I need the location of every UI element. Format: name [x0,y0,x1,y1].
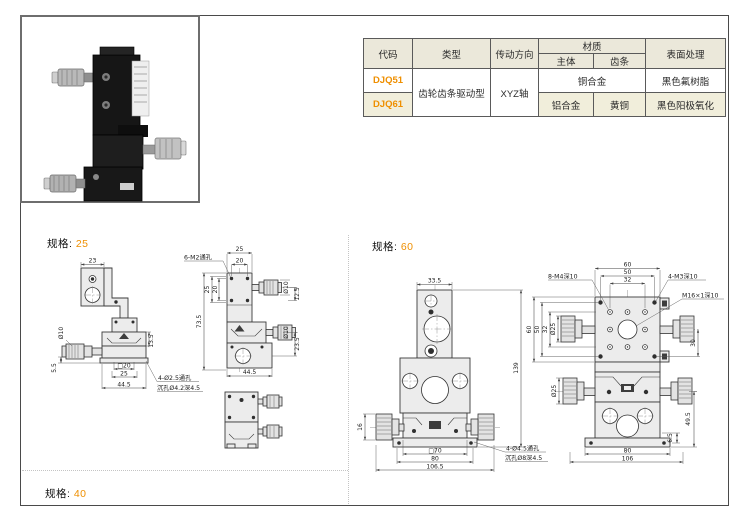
col-header-material-body: 主体 [539,54,594,69]
drawing-25-front: 25 20 6-M2通孔 73.5 25 20 Ø10 12.5 Ø10 [184,246,301,377]
dim-label: 60 [526,326,533,334]
product-photo-image [22,17,198,201]
dim-label: Ø25 [551,385,558,398]
col-header-material: 材质 [539,39,646,54]
dim-label: 49.5 [685,412,692,426]
catalog-page: 代码 类型 传动方向 材质 表面处理 主体 齿条 DJQ51 齿轮齿条驱动型 X… [0,0,748,510]
drawing-60-front: 33.5 139 16 □70 80 106.5 4-Ø4.5通孔 沉孔Ø8深4… [357,278,548,473]
dim-label: 50 [534,326,541,334]
drawings-spec-60: 33.5 139 16 □70 80 106.5 4-Ø4.5通孔 沉孔Ø8深4… [352,250,728,480]
dim-label: 20 [212,286,219,294]
section-label-40: 规格: 40 [45,486,87,501]
dim-label: 12.5 [294,287,301,301]
dim-label: 44.5 [243,369,257,376]
col-header-direction: 传动方向 [491,39,539,69]
dim-label: 44.5 [117,382,131,389]
dim-label: 106.5 [426,464,443,471]
hole-note: 4-Ø4.5通孔 [506,445,539,453]
dim-label: 73.5 [196,315,203,329]
col-header-type: 类型 [413,39,491,69]
spec-value: 40 [74,488,87,500]
drawings-spec-25: 23 Ø10 13.5 5.5 □20 25 44.5 4-Ø2.5通孔 沉孔Ø… [40,244,350,466]
dim-label: 25 [120,371,128,378]
dim-label: 23 [89,258,97,265]
col-header-code: 代码 [364,39,413,69]
col-header-surface: 表面处理 [646,39,726,69]
hole-note: 4-M3深10 [668,273,698,281]
drawing-25-third [225,392,282,448]
dim-label: 25 [204,286,211,294]
dim-label: 80 [431,456,439,463]
hole-note: 沉孔Ø8深4.5 [505,454,542,462]
cell-type: 齿轮齿条驱动型 [413,69,491,117]
dim-label: 33.5 [428,278,442,285]
dim-label: 20 [236,258,244,265]
dim-label: Ø25 [550,323,557,336]
drawing-60-top: 60 50 32 8-M4深10 4-M3深10 M16×1深10 60 50 … [526,262,724,465]
dim-label: □20 [117,363,130,370]
dim-label: 25 [236,246,244,253]
dim-label: 13.5 [148,334,155,348]
cell-code-djq51: DJQ51 [364,69,413,93]
cell-code-djq61: DJQ61 [364,93,413,117]
cell-material-djq51: 铜合金 [539,69,646,93]
cell-surface-djq61: 黑色阳极氧化 [646,93,726,117]
dim-label: 5.5 [51,363,58,373]
table-row: DJQ51 齿轮齿条驱动型 XYZ轴 铜合金 黑色氟树脂 [364,69,726,93]
cell-material-body-djq61: 铝合金 [539,93,594,117]
product-photo [20,15,200,203]
dim-label: 139 [513,362,520,374]
dim-label: 50 [624,269,632,276]
dim-label: 6.5 [667,433,674,443]
hole-note: 6-M2通孔 [184,254,212,262]
cell-material-rack-djq61: 黄铜 [594,93,646,117]
dim-label: 30 [690,339,697,347]
dim-label: 23.5 [294,337,301,351]
dim-label: Ø10 [58,327,65,340]
hole-note: 8-M4深10 [548,273,578,281]
cell-direction: XYZ轴 [491,69,539,117]
dim-label: 32 [542,326,549,334]
section-divider [22,470,348,471]
dim-label: 16 [357,423,364,431]
hole-note: 4-Ø2.5通孔 [158,374,191,382]
dim-label: □70 [428,448,441,455]
dim-label: 60 [624,262,632,269]
dim-label: 32 [624,277,632,284]
hole-note: 沉孔Ø4.2深4.5 [157,384,200,392]
drawing-25-side: 23 Ø10 13.5 5.5 □20 25 44.5 4-Ø2.5通孔 沉孔Ø… [51,258,203,393]
cell-surface-djq51: 黑色氟树脂 [646,69,726,93]
col-header-material-rack: 齿条 [594,54,646,69]
spec-table: 代码 类型 传动方向 材质 表面处理 主体 齿条 DJQ51 齿轮齿条驱动型 X… [363,38,726,117]
spec-label-text: 规格: [45,488,70,500]
hole-note: M16×1深10 [682,292,718,300]
dim-label: 80 [624,448,632,455]
dim-label: 106 [622,456,634,463]
